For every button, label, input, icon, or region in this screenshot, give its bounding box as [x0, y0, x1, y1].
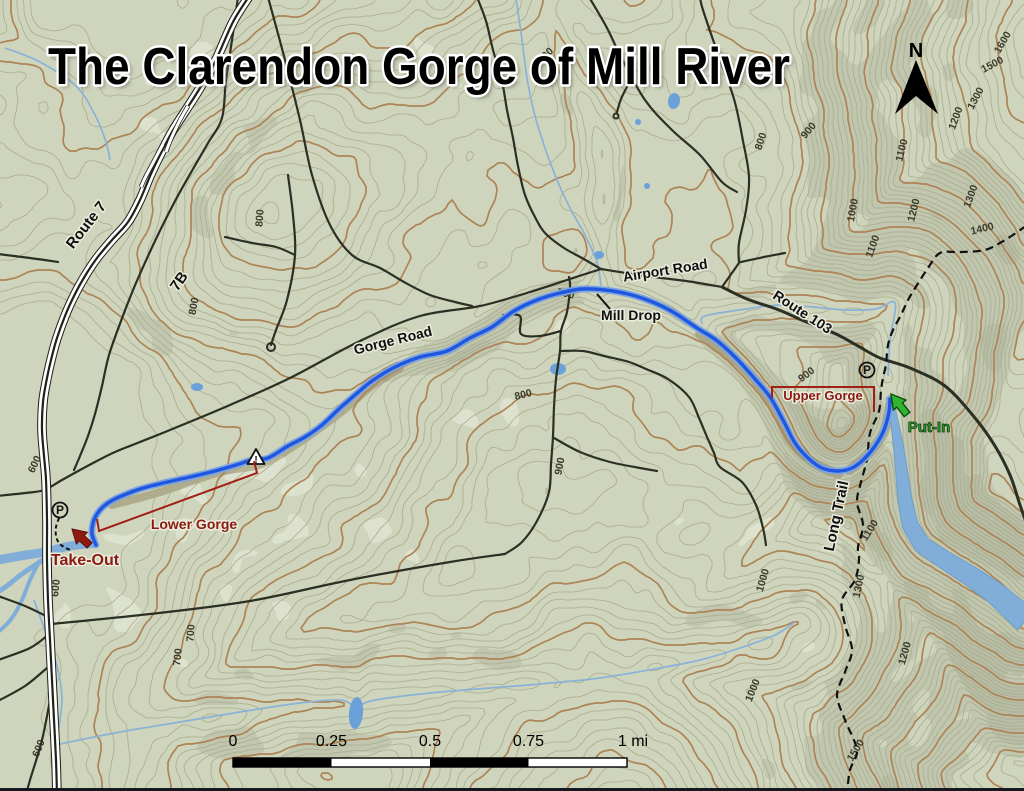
svg-text:700: 700 — [184, 624, 197, 642]
svg-text:0.25: 0.25 — [316, 733, 347, 750]
svg-text:Put-In: Put-In — [908, 419, 951, 436]
svg-text:Take-Out: Take-Out — [51, 552, 120, 569]
svg-text:700: 700 — [171, 648, 185, 667]
svg-text:800: 800 — [253, 209, 266, 227]
svg-text:1 mi: 1 mi — [618, 733, 648, 750]
svg-text:0.5: 0.5 — [419, 733, 441, 750]
svg-text:N: N — [909, 40, 923, 62]
svg-text:The Clarendon Gorge of Mill Ri: The Clarendon Gorge of Mill River — [48, 38, 790, 96]
svg-text:Upper Gorge: Upper Gorge — [783, 388, 862, 403]
svg-text:0: 0 — [229, 733, 238, 750]
svg-text:Lower Gorge: Lower Gorge — [151, 516, 238, 532]
svg-text:Mill Drop: Mill Drop — [601, 307, 661, 323]
svg-text:P: P — [863, 363, 871, 377]
svg-text:P: P — [56, 503, 64, 517]
svg-text:0.75: 0.75 — [513, 733, 544, 750]
